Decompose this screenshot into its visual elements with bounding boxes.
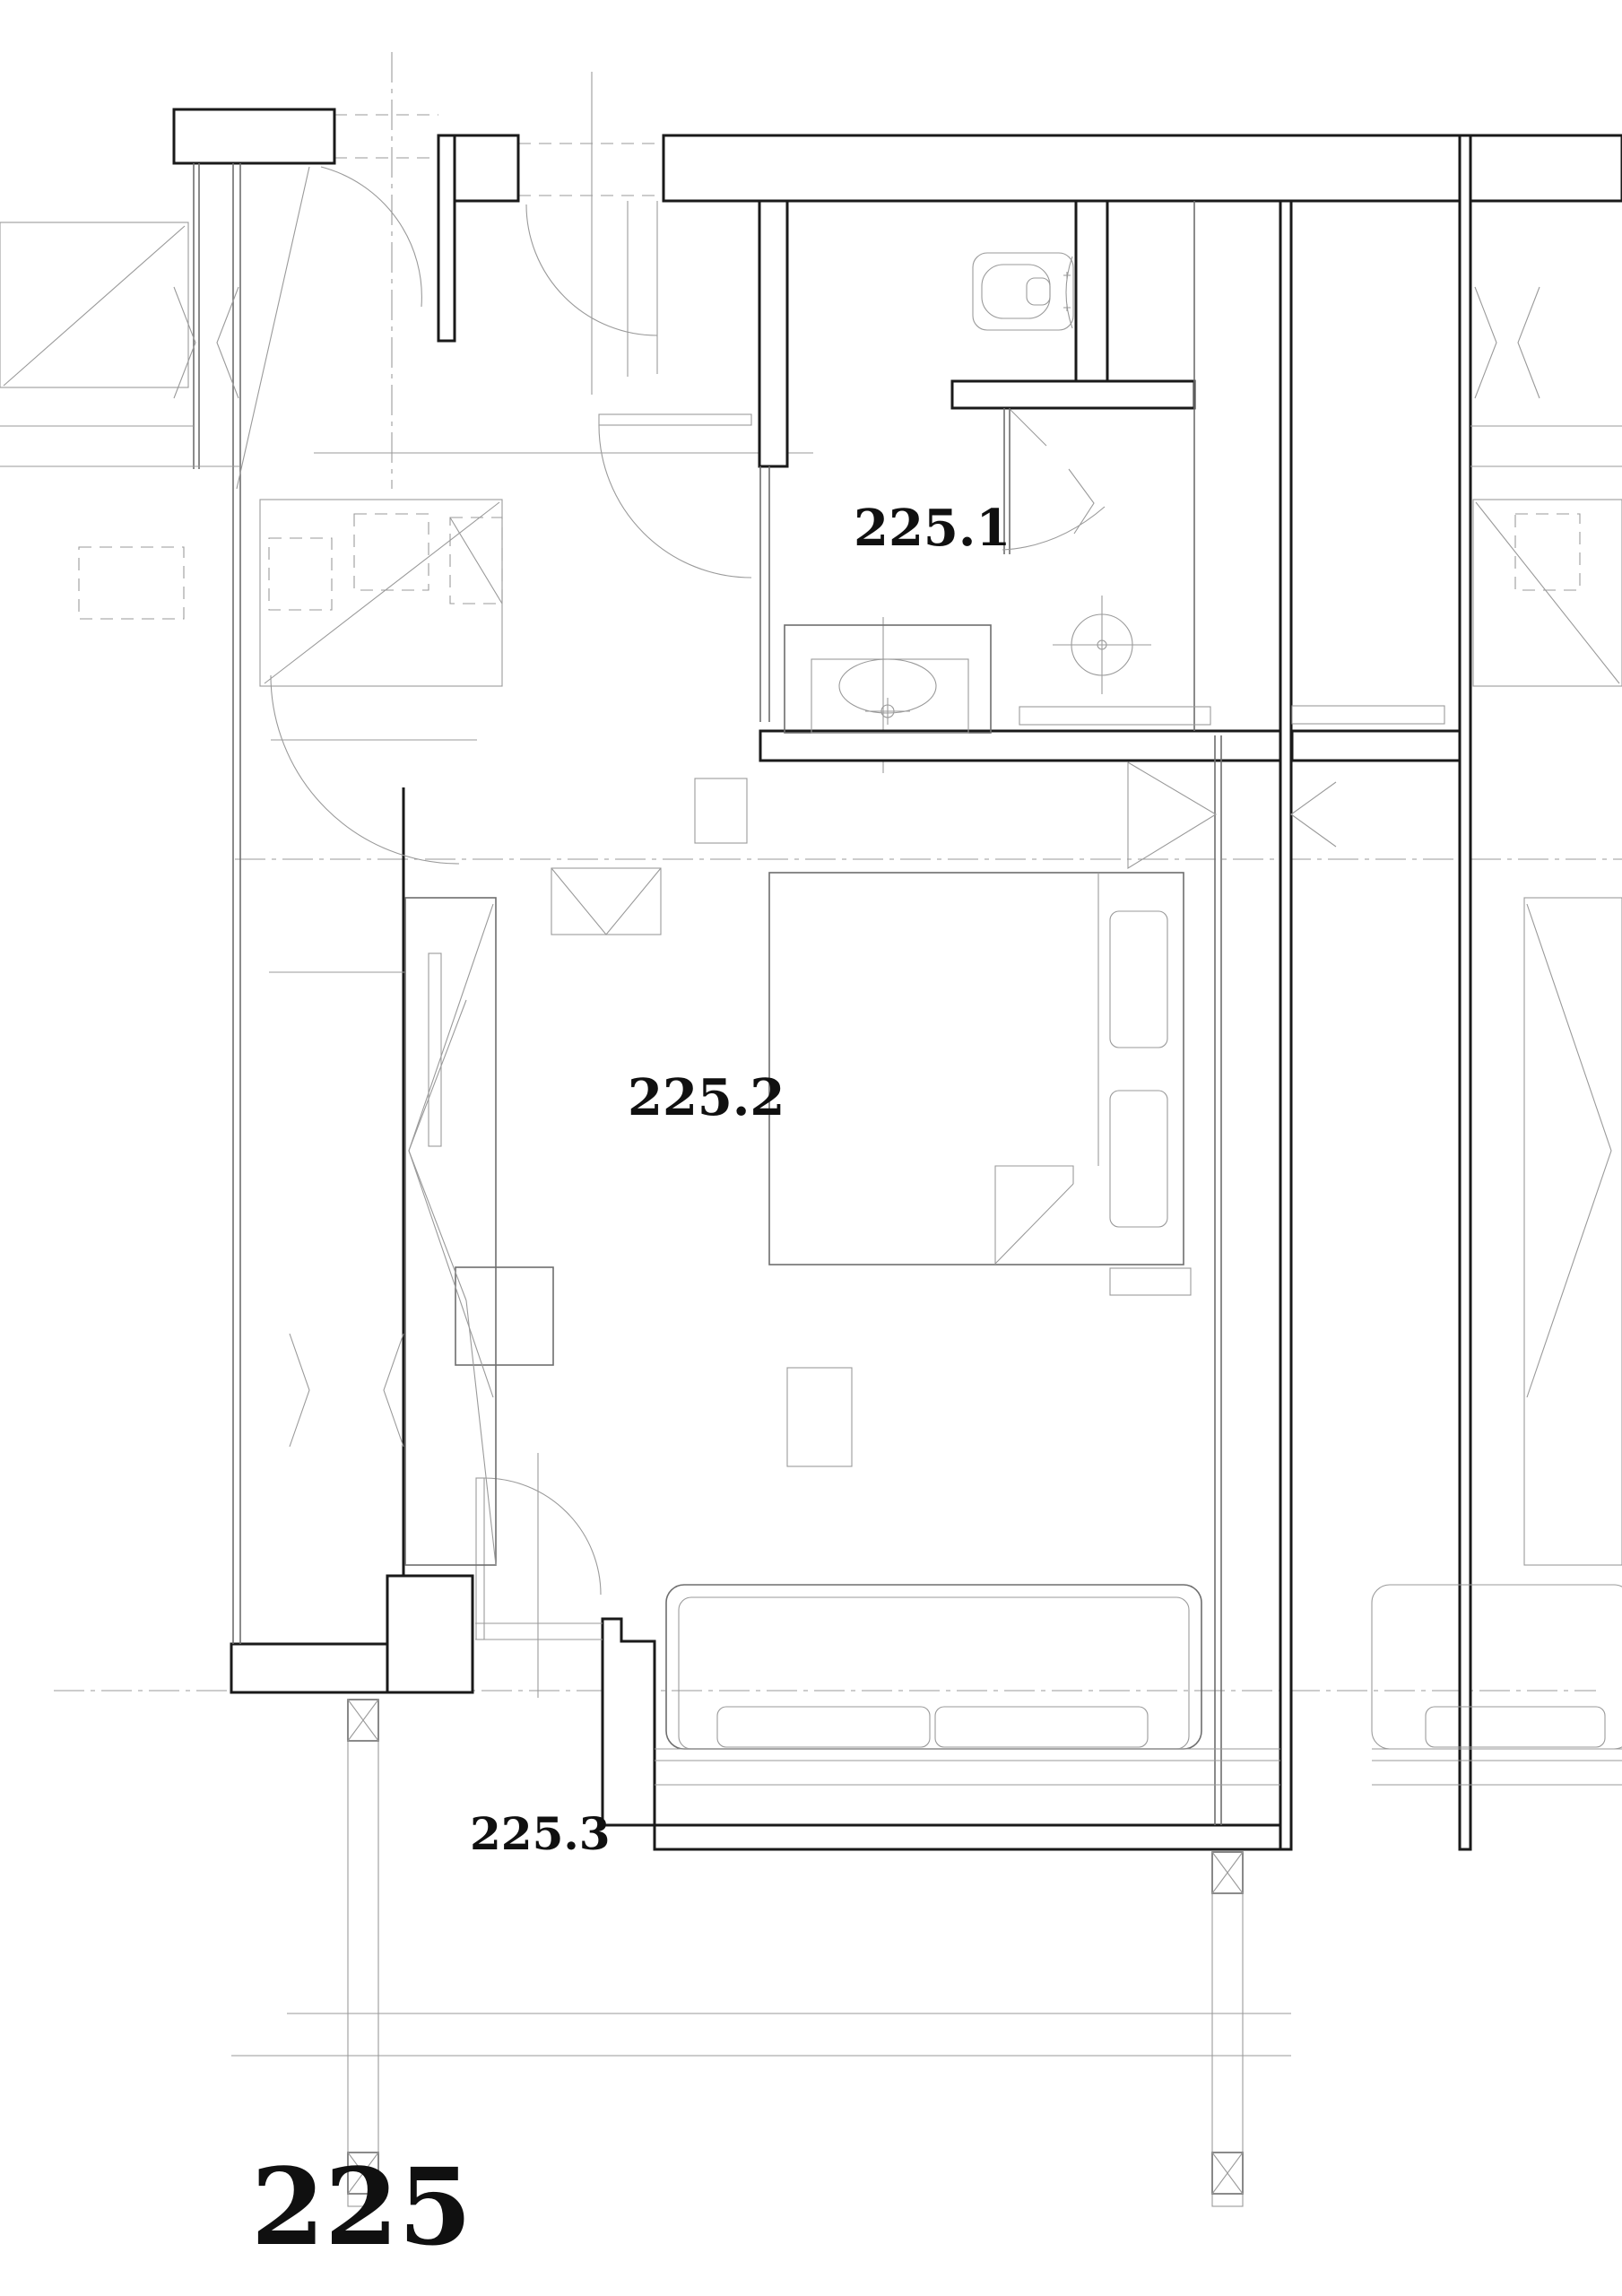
- closet-diagonal: [450, 517, 502, 604]
- tap-cross: [865, 698, 910, 725]
- vent-triangle-icon: [1128, 762, 1216, 868]
- sofa-cushion: [1426, 1707, 1605, 1747]
- door-swing-icon: [271, 675, 459, 864]
- wardrobe-icon: [405, 898, 496, 1565]
- cavity-chevrons: [174, 287, 403, 1447]
- post-shaft: [348, 1700, 378, 2206]
- bed-outline: [769, 873, 1184, 1265]
- door-swing-icon: [321, 167, 421, 307]
- chevron-mark: [290, 1334, 309, 1447]
- wall-neighbor-band: [1292, 731, 1460, 761]
- duvet-fold-diagonal: [995, 1184, 1073, 1264]
- wall-top-left-band: [174, 109, 334, 163]
- wardrobe-diagonal: [466, 1300, 496, 1565]
- table-outline: [551, 868, 661, 935]
- closet-diagonal: [265, 502, 499, 683]
- wall-party: [1280, 201, 1291, 1849]
- sofa-icon: [666, 1585, 1201, 1749]
- column-icon: [1212, 1852, 1243, 2206]
- side-table: [551, 868, 661, 935]
- fixing-mark: [1063, 272, 1071, 279]
- hanging-rail-dashed: [1515, 514, 1580, 590]
- shower-drain-icon: [1053, 596, 1151, 694]
- nightstand: [695, 778, 747, 843]
- window-band: [655, 1749, 1280, 1785]
- sofa-cushion: [717, 1707, 930, 1747]
- bedroom-furniture: [455, 778, 1280, 1785]
- chevron-mark: [384, 1334, 403, 1447]
- stool: [455, 1267, 553, 1365]
- mirror-strip: [429, 953, 441, 1146]
- chevron-mark: [174, 287, 195, 398]
- vanity-inner: [811, 659, 968, 733]
- toilet-drain: [1027, 278, 1050, 305]
- entry-closet: [79, 500, 502, 686]
- wall-below-wc: [952, 381, 1194, 408]
- hanging-rail-dashed: [269, 538, 332, 610]
- toilet-bowl: [982, 265, 1050, 318]
- wall-pier: [438, 135, 455, 341]
- fixing-mark: [1063, 304, 1071, 311]
- table-mark: [551, 868, 661, 935]
- pillow: [1110, 911, 1167, 1048]
- door-swing-icon: [599, 425, 751, 578]
- post-x: [348, 1700, 378, 1741]
- wall-wc-pier: [1076, 201, 1107, 381]
- wall-top-mid-pier: [453, 135, 518, 201]
- wall-bathroom-bottom: [760, 731, 1321, 761]
- room-label-balcony: 225.3: [470, 1807, 611, 1860]
- chevron-mark: [1291, 782, 1336, 847]
- closet-diagonal: [1476, 502, 1619, 683]
- wall-bottom-band: [655, 1825, 1291, 1849]
- wall-top-band: [664, 135, 1622, 201]
- right-neighbor: [1291, 287, 1622, 1785]
- section-lines: [54, 52, 1622, 1698]
- sofa-cushion: [935, 1707, 1148, 1747]
- wardrobe-outline: [1524, 898, 1622, 1565]
- pillow: [1110, 1091, 1167, 1227]
- closet-outline: [260, 500, 502, 686]
- neighbor-sofa: [1372, 1585, 1622, 1749]
- wardrobe-chevron: [409, 1000, 466, 1300]
- door-bathroom: [599, 414, 751, 578]
- post-x: [1212, 1852, 1243, 1893]
- closet-diagonal: [4, 226, 185, 386]
- bed-bench: [1110, 1268, 1191, 1295]
- duvet-fold: [995, 1166, 1073, 1265]
- door-dressing: [271, 675, 477, 864]
- hanging-rail-dashed: [354, 514, 429, 590]
- wall-facade-corner: [603, 1619, 655, 1825]
- wardrobe-chevron: [1527, 904, 1611, 1397]
- unit-title: 225: [251, 2144, 472, 2269]
- column-icon: [348, 1700, 378, 2206]
- neighbor-shelf: [1292, 706, 1444, 724]
- chevron-mark: [217, 287, 239, 398]
- post-x: [1212, 2152, 1243, 2194]
- sink-icon: [785, 625, 991, 733]
- wall-balcony-band: [231, 1644, 387, 1692]
- labels: 225.1 225.2 225.3 225: [251, 499, 1010, 2269]
- door-balcony: [475, 1478, 603, 1639]
- door-leaf: [599, 414, 751, 425]
- sofa-inner: [679, 1597, 1189, 1749]
- toilet-cistern: [1066, 257, 1072, 328]
- door-swing-icon: [1002, 507, 1105, 550]
- balcony: [231, 1700, 1291, 2206]
- bathroom-fixtures: [785, 253, 1216, 868]
- chevron-mark: [1475, 287, 1496, 398]
- bifold-door-icon: [1010, 410, 1046, 446]
- shower-bench: [1019, 707, 1210, 725]
- bed-icon: [769, 873, 1191, 1295]
- hanging-rail-dashed: [79, 547, 184, 619]
- sofa-outline: [666, 1585, 1201, 1749]
- room-label-bedroom: 225.2: [628, 1068, 785, 1127]
- door-leaf: [237, 167, 309, 489]
- room-label-bathroom: 225.1: [854, 499, 1010, 558]
- door-leaf: [476, 1478, 484, 1639]
- door-top-left: [237, 167, 421, 489]
- coffee-table: [787, 1368, 852, 1466]
- toilet-icon: [973, 253, 1073, 330]
- wall-pier-bathroom: [759, 201, 787, 466]
- floor-plan-svg: 225.1 225.2 225.3 225: [0, 0, 1622, 2296]
- wall-right: [1460, 135, 1470, 1849]
- wall-balcony-pier: [387, 1576, 473, 1692]
- door-shower-bifold: [1002, 410, 1105, 550]
- drain-cross: [1053, 596, 1151, 694]
- door-swing-icon: [484, 1478, 601, 1595]
- chevron-mark: [1518, 287, 1540, 398]
- sofa-outline: [1372, 1585, 1622, 1749]
- wardrobe-outline: [405, 898, 496, 1565]
- left-neighbor-closet: [0, 222, 188, 387]
- wardrobe-chevron: [409, 904, 493, 1397]
